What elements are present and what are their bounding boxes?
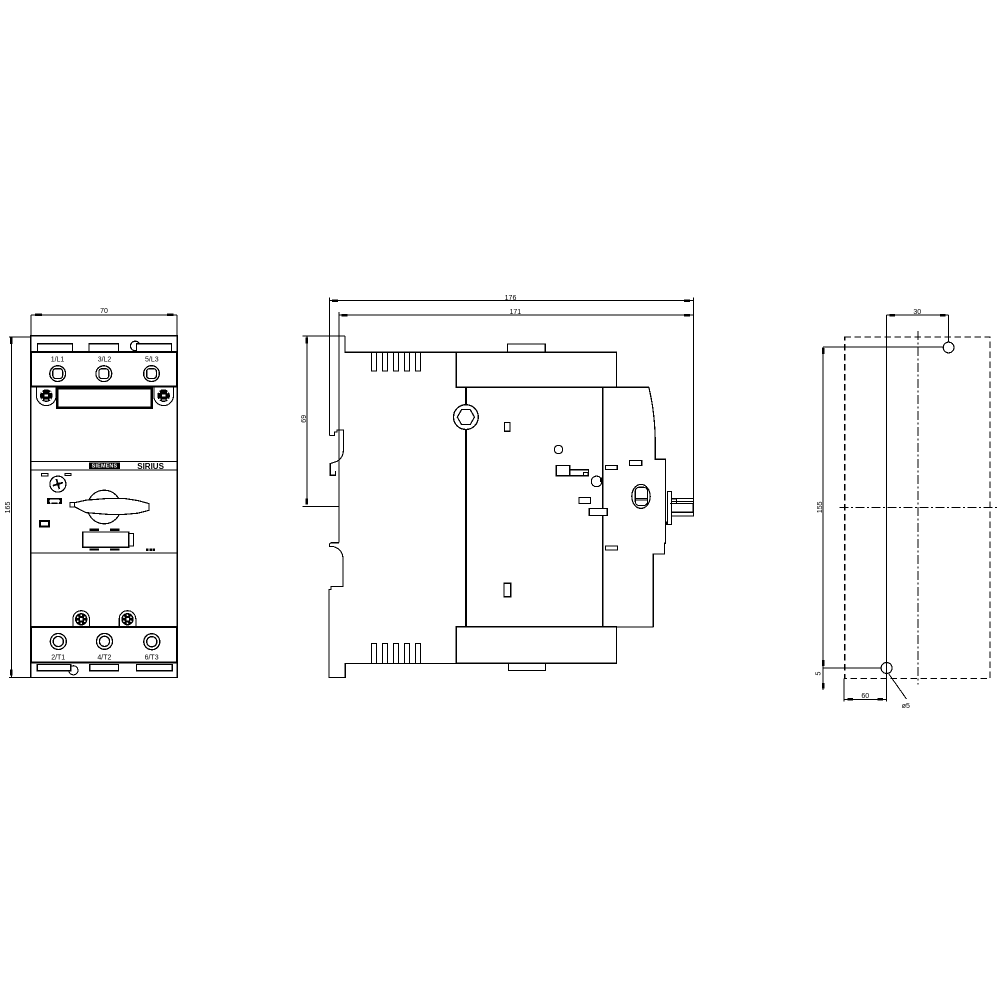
svg-text:30: 30 [913, 309, 921, 316]
svg-text:69: 69 [301, 415, 308, 423]
svg-text:165: 165 [5, 502, 12, 514]
svg-text:SIEMENS: SIEMENS [92, 464, 118, 470]
svg-text:6/T3: 6/T3 [145, 654, 159, 661]
svg-text:2/T1: 2/T1 [51, 654, 65, 661]
svg-text:60: 60 [861, 693, 869, 700]
svg-text:4/T2: 4/T2 [97, 654, 111, 661]
svg-text:SIRIUS: SIRIUS [137, 462, 164, 471]
svg-text:171: 171 [509, 309, 521, 316]
svg-text:155: 155 [817, 501, 824, 513]
svg-text:3/L2: 3/L2 [98, 356, 112, 363]
svg-text:5/L3: 5/L3 [145, 356, 159, 363]
svg-text:1/L1: 1/L1 [51, 356, 65, 363]
svg-text:ø5: ø5 [902, 703, 910, 710]
svg-text:176: 176 [505, 295, 517, 302]
svg-text:70: 70 [100, 308, 108, 315]
svg-text:5: 5 [816, 671, 823, 675]
